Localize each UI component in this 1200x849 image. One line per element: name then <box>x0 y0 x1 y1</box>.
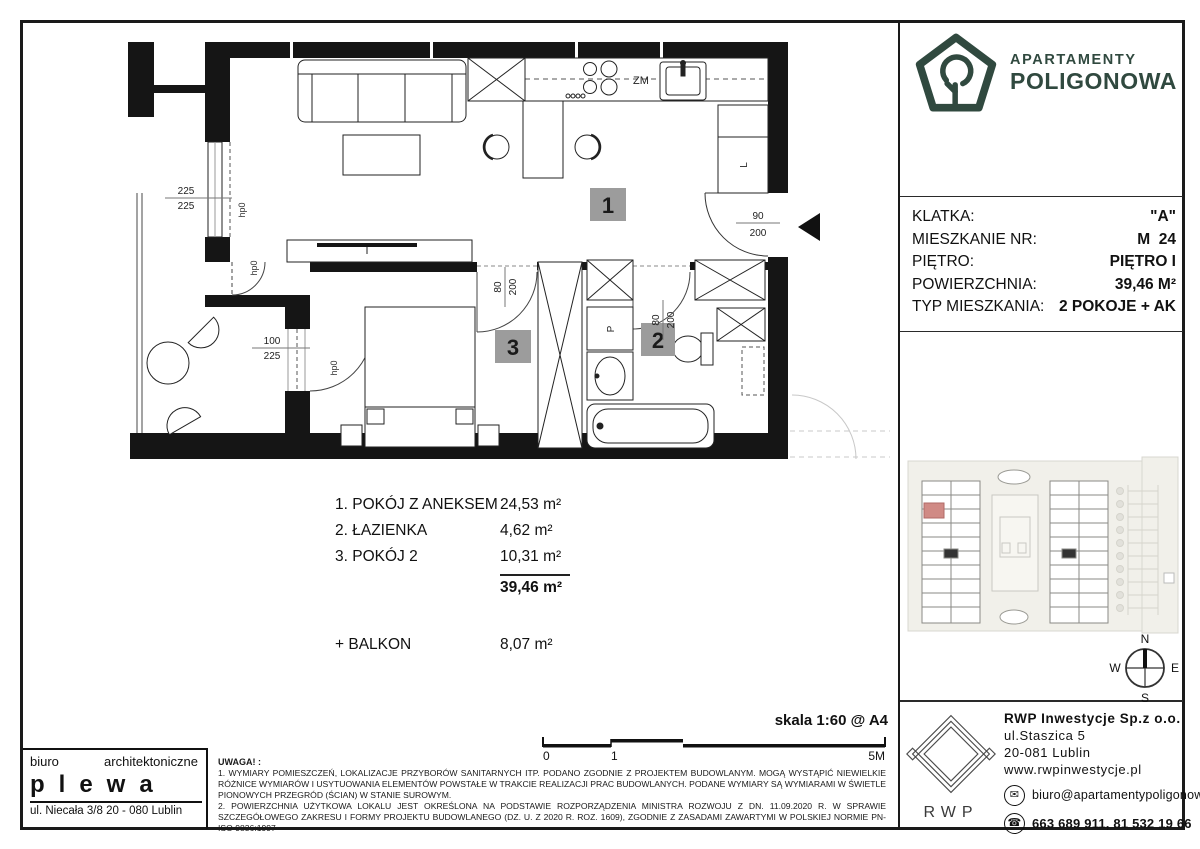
bedroom-door <box>477 266 537 332</box>
window-left <box>208 142 230 237</box>
dim-bedroom-door: 80 200 <box>493 267 519 307</box>
brand-line2: POLIGONOWA <box>1010 69 1177 93</box>
developer-city: 20-081 Lublin <box>1004 744 1200 761</box>
total-area: 39,46 m² <box>500 576 575 600</box>
room-name: 3. POKÓJ 2 <box>335 544 500 570</box>
compass-n: N <box>1141 632 1150 646</box>
room-row: 1. POKÓJ Z ANEKSEM24,53 m² <box>335 492 575 518</box>
detail-value: PIĘTRO I <box>1110 251 1176 274</box>
svg-text:90: 90 <box>752 211 764 222</box>
compass-e: E <box>1171 661 1179 675</box>
developer-email[interactable]: biuro@apartamentypoligonowa.pl <box>1032 787 1200 804</box>
developer-street: ul.Staszica 5 <box>1004 727 1200 744</box>
room-row: 3. POKÓJ 210,31 m² <box>335 544 575 570</box>
dishwasher-label: ZM <box>633 75 649 87</box>
detail-value: "A" <box>1150 206 1176 229</box>
brand-line1: APARTAMENTY <box>1010 53 1177 68</box>
developer-website[interactable]: www.rwpinwestycje.pl <box>1004 761 1200 778</box>
svg-text:225: 225 <box>178 186 195 197</box>
nightstand <box>478 425 499 446</box>
detail-row: POWIERZCHNIA:39,46 M² <box>912 274 1176 297</box>
courtyard <box>992 495 1038 591</box>
washer-label: P <box>606 325 617 332</box>
room-badge-3: 3 <box>495 330 531 363</box>
detail-label: POWIERZCHNIA: <box>912 274 1037 297</box>
svg-text:200: 200 <box>666 311 677 328</box>
nightstand <box>341 425 362 446</box>
room-area: 24,53 m² <box>500 492 575 518</box>
pentagon-tree-icon <box>912 30 1000 116</box>
svg-text:200: 200 <box>508 278 519 295</box>
dim-entrance: 90 200 <box>736 211 780 239</box>
balcony-railing <box>137 193 142 433</box>
detail-label: PIĘTRO: <box>912 251 974 274</box>
compass-rose: N S W E <box>1105 630 1185 711</box>
details-bottom-rule <box>900 331 1183 332</box>
room-list: 1. POKÓJ Z ANEKSEM24,53 m² 2. ŁAZIENKA4,… <box>335 492 575 658</box>
tv-sideboard <box>287 240 472 262</box>
architect-address: ul. Niecała 3/8 20 - 080 Lublin <box>30 805 198 817</box>
balcony-chair <box>188 317 226 355</box>
total-row: 39,46 m² <box>335 576 575 600</box>
architect-block: biuro architektoniczne plewa ul. Niecała… <box>30 754 198 817</box>
phone-icon: ☎ <box>1004 813 1025 834</box>
note-2: 2. POWIERZCHNIA UŻYTKOWA LOKALU JEST OKR… <box>218 801 886 834</box>
building-right <box>1050 481 1108 623</box>
balcony-chair <box>160 401 200 435</box>
svg-text:2: 2 <box>652 328 664 353</box>
kitchen-tall-cabinet <box>468 58 525 101</box>
dining-island <box>523 101 563 178</box>
balcony-label: + BALKON <box>335 632 500 658</box>
architect-name: plewa <box>30 770 198 800</box>
phone-row[interactable]: ☎ 663 689 911, 81 532 19 66 <box>1004 813 1200 834</box>
entry-wardrobe <box>718 105 768 193</box>
room-area: 4,62 m² <box>500 518 575 544</box>
building-left <box>922 481 980 623</box>
column-divider <box>898 20 900 830</box>
architect-line1b: architektoniczne <box>104 754 198 769</box>
tall-wardrobe <box>538 262 582 448</box>
balcony-row: + BALKON8,07 m² <box>335 632 575 658</box>
compass-w: W <box>1109 661 1121 675</box>
radiator <box>742 347 764 395</box>
svg-text:3: 3 <box>507 335 519 360</box>
toilet <box>673 333 713 365</box>
detail-row: KLATKA:"A" <box>912 206 1176 229</box>
dining-chair <box>484 135 509 159</box>
bathtub <box>587 404 714 448</box>
notes-block: UWAGA! : 1. WYMIARY POMIESZCZEŃ, LOKALIZ… <box>218 757 886 834</box>
compass-s: S <box>1141 691 1149 705</box>
balcony-table <box>147 342 189 384</box>
detail-label: KLATKA: <box>912 206 975 229</box>
bath-cabinet <box>717 308 765 341</box>
developer-block: RWP RWP Inwestycje Sp.z o.o. ul.Staszica… <box>906 706 1182 834</box>
floorplan-sheet: APARTAMENTY POLIGONOWA KLATKA:"A" MIESZK… <box>0 0 1200 849</box>
room-badge-1: 1 <box>590 188 626 221</box>
svg-text:225: 225 <box>178 201 195 212</box>
exterior-landing <box>790 395 890 459</box>
coffee-table <box>343 135 420 175</box>
svg-text:100: 100 <box>264 336 281 347</box>
email-row[interactable]: ✉ biuro@apartamentypoligonowa.pl <box>1004 785 1200 806</box>
entrance-arrow <box>798 213 820 241</box>
hall-cabinet <box>587 260 633 300</box>
washbasin <box>587 352 633 400</box>
svg-text:200: 200 <box>750 228 767 239</box>
svg-text:1: 1 <box>602 193 614 218</box>
svg-text:225: 225 <box>264 351 281 362</box>
room-area: 10,31 m² <box>500 544 575 570</box>
detail-value: 39,46 M² <box>1115 274 1176 297</box>
detail-row: TYP MIESZKANIA:2 POKOJE + AK <box>912 296 1176 319</box>
north-needle <box>1143 649 1147 668</box>
svg-text:80: 80 <box>651 314 662 326</box>
architect-rule <box>30 801 202 803</box>
details-top-rule <box>900 196 1183 197</box>
architect-box-rule <box>23 748 206 750</box>
bed <box>365 307 475 447</box>
hp0-label: hp0 <box>237 202 247 217</box>
dim-balcony-door: 100 225 <box>252 336 310 362</box>
room-name: 2. ŁAZIENKA <box>335 518 500 544</box>
hall-cabinet <box>695 260 765 300</box>
rwp-logo: RWP <box>906 706 996 834</box>
detail-value: 2 POKOJE + AK <box>1059 296 1176 319</box>
detail-label: MIESZKANIE NR: <box>912 229 1037 252</box>
site-plan-minimap <box>904 455 1182 645</box>
room-name: 1. POKÓJ Z ANEKSEM <box>335 492 500 518</box>
architect-line1: biuro <box>30 754 59 769</box>
hp0-label: hp0 <box>329 360 339 375</box>
developer-phone: 663 689 911, 81 532 19 66 <box>1032 815 1192 832</box>
balcony-door-bedroom <box>288 329 372 391</box>
detail-value: M 24 <box>1137 229 1176 252</box>
detail-label: TYP MIESZKANIA: <box>912 296 1044 319</box>
room-row: 2. ŁAZIENKA4,62 m² <box>335 518 575 544</box>
highlighted-unit <box>924 503 944 518</box>
developer-name: RWP Inwestycje Sp.z o.o. <box>1004 710 1200 727</box>
svg-text:80: 80 <box>493 281 504 293</box>
notes-title: UWAGA! : <box>218 757 886 768</box>
floor-plan: ZM <box>120 25 895 485</box>
dining-chair <box>575 135 600 159</box>
envelope-icon: ✉ <box>1004 785 1025 806</box>
sink-icon <box>660 61 706 101</box>
entrance-door <box>705 193 768 256</box>
wardrobe-label: L <box>739 162 750 168</box>
architect-box-divider <box>206 748 208 829</box>
sofa <box>298 60 466 122</box>
unit-details: KLATKA:"A" MIESZKANIE NR:M 24 PIĘTRO:PIĘ… <box>912 206 1176 319</box>
detail-row: PIĘTRO:PIĘTRO I <box>912 251 1176 274</box>
scale-text: skala 1:60 @ A4 <box>600 712 888 729</box>
rwp-wordmark: RWP <box>923 804 978 822</box>
note-1: 1. WYMIARY POMIESZCZEŃ, LOKALIZACJE PRZY… <box>218 768 886 801</box>
balcony-area: 8,07 m² <box>500 632 575 658</box>
brand-logo: APARTAMENTY POLIGONOWA <box>912 30 1180 116</box>
detail-row: MIESZKANIE NR:M 24 <box>912 229 1176 252</box>
hp0-label: hp0 <box>249 260 259 275</box>
